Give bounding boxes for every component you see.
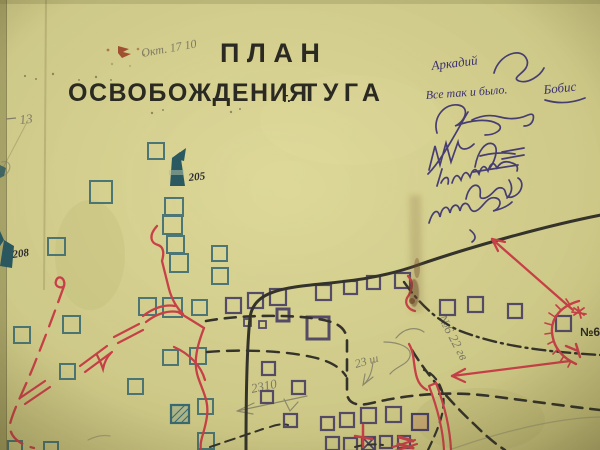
photo-vignette <box>0 0 600 450</box>
liberation-plan-map: ПЛАН ОСВОБОЖДЕНИЯ г. ТУГА Окт. 17 10 13 … <box>0 0 600 450</box>
map-photo: ПЛАН ОСВОБОЖДЕНИЯ г. ТУГА Окт. 17 10 13 … <box>0 0 600 450</box>
